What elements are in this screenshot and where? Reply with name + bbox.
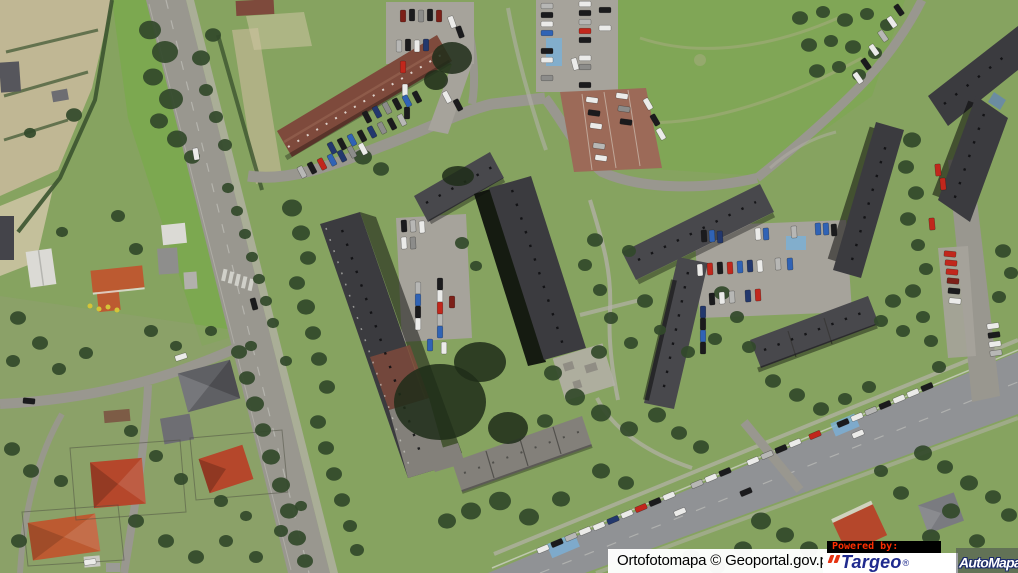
parked-car bbox=[700, 330, 706, 342]
tree bbox=[591, 345, 607, 359]
orthophoto-map bbox=[0, 0, 1018, 573]
tree bbox=[893, 486, 909, 500]
parked-car bbox=[946, 269, 958, 276]
tree bbox=[862, 381, 876, 393]
tree bbox=[809, 64, 825, 78]
parked-car bbox=[709, 230, 715, 242]
parked-car bbox=[823, 223, 829, 235]
tree bbox=[618, 476, 634, 490]
tree-shadow bbox=[424, 70, 448, 90]
tree bbox=[56, 227, 68, 237]
tree bbox=[776, 527, 794, 542]
parked-car bbox=[541, 48, 553, 54]
tree bbox=[624, 337, 638, 349]
tree bbox=[144, 325, 158, 337]
tree bbox=[537, 414, 553, 428]
parked-car bbox=[935, 164, 942, 176]
tree bbox=[6, 355, 20, 367]
tree bbox=[222, 183, 234, 193]
house-roof bbox=[183, 272, 197, 290]
tree bbox=[860, 8, 874, 20]
tree bbox=[593, 284, 607, 296]
tree bbox=[587, 233, 603, 247]
tree bbox=[11, 534, 27, 548]
tree bbox=[960, 475, 978, 490]
parked-car bbox=[404, 107, 410, 119]
tree bbox=[267, 318, 279, 328]
tree bbox=[274, 525, 288, 537]
tree bbox=[149, 450, 163, 462]
tree-shadow bbox=[488, 412, 528, 444]
tree bbox=[751, 513, 771, 530]
tree bbox=[845, 40, 861, 54]
tree bbox=[591, 405, 611, 422]
tree bbox=[592, 463, 610, 478]
shed bbox=[0, 61, 21, 92]
tree bbox=[838, 393, 852, 405]
parked-car bbox=[815, 223, 821, 235]
parked-car bbox=[717, 262, 723, 274]
tree bbox=[837, 13, 853, 27]
tree bbox=[318, 441, 334, 455]
tree bbox=[896, 325, 910, 337]
parked-car bbox=[791, 226, 797, 238]
parked-car bbox=[427, 339, 433, 351]
parked-car bbox=[541, 30, 553, 36]
tree bbox=[924, 335, 938, 347]
parked-car bbox=[410, 237, 416, 249]
tree bbox=[249, 551, 263, 563]
tree bbox=[470, 261, 482, 271]
tree bbox=[205, 326, 217, 336]
tree bbox=[239, 229, 251, 239]
tree bbox=[262, 449, 280, 464]
tree bbox=[565, 389, 585, 406]
attribution-bar: Ortofotomapa © Geoportal.gov.pl bbox=[608, 549, 840, 573]
parked-car bbox=[436, 10, 442, 22]
tree bbox=[816, 6, 830, 18]
tree bbox=[239, 371, 255, 385]
tree bbox=[231, 206, 243, 216]
tree bbox=[648, 407, 666, 422]
tree bbox=[310, 415, 326, 429]
tree bbox=[792, 11, 808, 25]
tree bbox=[693, 440, 709, 454]
tree bbox=[552, 491, 570, 506]
parked-car bbox=[579, 55, 591, 61]
tree bbox=[489, 492, 511, 511]
tree bbox=[519, 509, 539, 526]
shed bbox=[0, 216, 14, 260]
parked-car bbox=[707, 263, 713, 275]
tree bbox=[139, 21, 161, 40]
parked-car bbox=[427, 9, 433, 21]
tree bbox=[66, 108, 82, 122]
yellow-bush bbox=[97, 307, 102, 312]
parked-car bbox=[437, 290, 443, 302]
tree bbox=[219, 535, 233, 547]
tree bbox=[334, 493, 350, 507]
tree bbox=[1001, 508, 1017, 522]
tree bbox=[898, 160, 914, 174]
parked-car bbox=[437, 314, 443, 326]
automapa-logo-text: AutoMapa bbox=[959, 555, 1018, 571]
tree bbox=[995, 244, 1011, 258]
parked-car bbox=[401, 220, 407, 232]
parked-car bbox=[831, 224, 837, 236]
parked-car bbox=[541, 3, 553, 9]
tree bbox=[288, 530, 306, 545]
parked-car bbox=[437, 326, 443, 338]
tree bbox=[438, 513, 456, 528]
tree bbox=[129, 243, 143, 255]
parked-car bbox=[415, 318, 421, 330]
tree bbox=[620, 421, 638, 436]
parked-car bbox=[719, 292, 725, 304]
tree bbox=[280, 356, 292, 366]
parked-car bbox=[418, 10, 424, 22]
parked-car bbox=[401, 237, 407, 249]
tree bbox=[205, 28, 221, 42]
tree bbox=[24, 128, 36, 138]
parked-car bbox=[414, 40, 420, 52]
tree bbox=[903, 132, 921, 147]
parked-car bbox=[745, 290, 751, 302]
tree bbox=[985, 490, 1001, 504]
tree bbox=[240, 511, 252, 521]
tree bbox=[209, 111, 223, 123]
tree bbox=[742, 341, 756, 353]
tree bbox=[1004, 267, 1018, 279]
tree bbox=[300, 251, 316, 265]
parked-car bbox=[579, 1, 591, 7]
parked-car bbox=[763, 228, 769, 240]
parked-car bbox=[441, 342, 447, 354]
tree bbox=[373, 162, 389, 176]
tree bbox=[874, 465, 888, 477]
parked-car bbox=[423, 39, 429, 51]
tree bbox=[969, 534, 985, 548]
tree bbox=[992, 291, 1006, 303]
parked-car bbox=[940, 178, 947, 190]
tree bbox=[253, 274, 265, 284]
tree bbox=[192, 50, 210, 65]
white-barn bbox=[26, 248, 57, 287]
parked-car bbox=[400, 10, 406, 22]
tree bbox=[932, 361, 946, 373]
tree bbox=[905, 284, 921, 298]
parked-car bbox=[929, 218, 936, 230]
parked-car bbox=[402, 84, 408, 96]
parked-car bbox=[775, 258, 781, 270]
tree bbox=[214, 495, 228, 507]
yellow-bush bbox=[106, 305, 111, 310]
parked-car bbox=[400, 61, 406, 73]
parked-car bbox=[541, 57, 553, 63]
tree bbox=[23, 464, 39, 478]
parked-car bbox=[437, 278, 443, 290]
tree bbox=[908, 186, 924, 200]
house-roof bbox=[161, 223, 187, 245]
tree bbox=[54, 475, 68, 487]
tree bbox=[260, 296, 272, 306]
parked-car bbox=[757, 260, 763, 272]
tree bbox=[282, 200, 302, 217]
tree bbox=[297, 299, 315, 314]
parked-car bbox=[396, 40, 402, 52]
tree-shadow bbox=[454, 342, 506, 382]
powered-by-label: Powered by: bbox=[827, 541, 941, 553]
tree bbox=[311, 352, 327, 366]
parked-car bbox=[23, 398, 35, 405]
parked-car bbox=[415, 306, 421, 318]
tree bbox=[143, 69, 163, 86]
tree bbox=[937, 460, 953, 474]
tree bbox=[681, 346, 695, 358]
bare-patch bbox=[694, 54, 706, 66]
parked-car bbox=[948, 288, 960, 295]
parked-car bbox=[737, 261, 743, 273]
parked-car bbox=[579, 10, 591, 16]
parked-car bbox=[541, 21, 553, 27]
tree bbox=[319, 380, 335, 394]
tree bbox=[111, 210, 125, 222]
parked-car bbox=[409, 9, 415, 21]
parked-car bbox=[949, 298, 961, 305]
tree bbox=[911, 239, 925, 251]
tree bbox=[152, 41, 178, 63]
tree bbox=[245, 341, 257, 351]
targeo-logo-text: Targeo bbox=[841, 552, 902, 573]
parked-car bbox=[700, 306, 706, 318]
parked-car bbox=[700, 342, 706, 354]
tree bbox=[578, 259, 592, 271]
parked-car bbox=[541, 75, 553, 81]
parked-car bbox=[579, 82, 591, 88]
house-roof bbox=[236, 0, 275, 16]
tree bbox=[10, 311, 26, 325]
tree bbox=[604, 312, 618, 324]
tree bbox=[813, 402, 829, 416]
tree bbox=[199, 84, 213, 96]
tree bbox=[292, 225, 310, 240]
parked-car bbox=[579, 28, 591, 34]
tree bbox=[919, 263, 933, 275]
tree bbox=[150, 113, 168, 128]
tree bbox=[218, 139, 232, 151]
tree bbox=[885, 294, 901, 308]
tree bbox=[708, 333, 722, 345]
tree bbox=[52, 363, 66, 375]
attribution-text: Ortofotomapa © Geoportal.gov.pl bbox=[617, 552, 831, 569]
tree bbox=[128, 514, 144, 528]
parked-car bbox=[787, 258, 793, 270]
targeo-logo-marks-icon bbox=[829, 555, 838, 563]
tree bbox=[188, 550, 204, 564]
tree bbox=[272, 477, 290, 492]
tree bbox=[916, 311, 930, 323]
tree bbox=[170, 341, 182, 351]
tree bbox=[343, 520, 357, 532]
tree bbox=[455, 237, 469, 249]
parked-car bbox=[697, 264, 703, 276]
parked-car bbox=[449, 296, 455, 308]
parked-car bbox=[419, 221, 425, 233]
parked-car bbox=[579, 37, 591, 43]
parked-car bbox=[727, 262, 733, 274]
parked-car bbox=[944, 251, 956, 258]
parked-car bbox=[747, 260, 753, 272]
tree bbox=[305, 326, 321, 340]
parked-car bbox=[437, 302, 443, 314]
registered-mark: ® bbox=[903, 558, 910, 568]
tree bbox=[350, 544, 364, 556]
tree bbox=[900, 212, 916, 226]
map-viewport[interactable]: Ortofotomapa © Geoportal.gov.pl Powered … bbox=[0, 0, 1018, 573]
tree bbox=[289, 276, 305, 290]
tree bbox=[461, 503, 481, 520]
house-red-big bbox=[90, 458, 146, 508]
tree bbox=[874, 315, 888, 327]
tree bbox=[246, 396, 264, 411]
parked-car bbox=[755, 228, 761, 240]
tree bbox=[824, 35, 838, 47]
tree bbox=[671, 426, 687, 440]
parked-car bbox=[415, 282, 421, 294]
parked-car bbox=[599, 25, 611, 31]
tree bbox=[622, 245, 636, 257]
tree bbox=[231, 345, 247, 359]
farmyard bbox=[246, 12, 312, 50]
yellow-bush bbox=[115, 308, 120, 313]
tree bbox=[765, 374, 781, 388]
parked-car bbox=[701, 230, 707, 242]
parked-car bbox=[415, 294, 421, 306]
tree bbox=[544, 365, 562, 380]
tree bbox=[167, 131, 187, 148]
tree bbox=[914, 445, 932, 460]
tree bbox=[789, 388, 805, 402]
parked-car bbox=[599, 7, 611, 13]
tree bbox=[4, 442, 20, 456]
tree bbox=[174, 473, 188, 485]
parked-car bbox=[579, 19, 591, 25]
tree bbox=[730, 311, 744, 323]
tree bbox=[832, 61, 846, 73]
parked-car bbox=[541, 12, 553, 18]
tree bbox=[255, 423, 271, 437]
parked-car bbox=[717, 231, 723, 243]
tree bbox=[159, 89, 183, 109]
tree bbox=[942, 503, 960, 518]
tree-shadow bbox=[432, 42, 472, 74]
tree bbox=[295, 501, 307, 511]
parked-car bbox=[405, 39, 411, 51]
shed bbox=[106, 563, 120, 572]
tree bbox=[32, 336, 48, 350]
shed bbox=[104, 409, 131, 423]
tree bbox=[79, 347, 93, 359]
parked-car bbox=[579, 64, 591, 70]
tree-shadow bbox=[442, 166, 474, 186]
parked-car bbox=[947, 278, 959, 285]
house-roof bbox=[157, 247, 179, 274]
parked-car bbox=[410, 220, 416, 232]
automapa-logo[interactable]: AutoMapa® bbox=[956, 548, 1018, 573]
tree bbox=[801, 38, 817, 52]
parked-car bbox=[945, 260, 957, 267]
tree bbox=[297, 554, 313, 568]
tree bbox=[654, 325, 666, 335]
tree bbox=[637, 294, 653, 308]
tree bbox=[158, 534, 174, 548]
yellow-bush bbox=[88, 304, 93, 309]
parked-car bbox=[729, 291, 735, 303]
parked-car bbox=[709, 293, 715, 305]
tree bbox=[246, 252, 258, 262]
parked-car bbox=[755, 289, 761, 301]
tree bbox=[326, 467, 342, 481]
targeo-logo[interactable]: Targeo ® bbox=[823, 553, 958, 573]
tree bbox=[124, 425, 138, 437]
parked-car bbox=[700, 318, 706, 330]
